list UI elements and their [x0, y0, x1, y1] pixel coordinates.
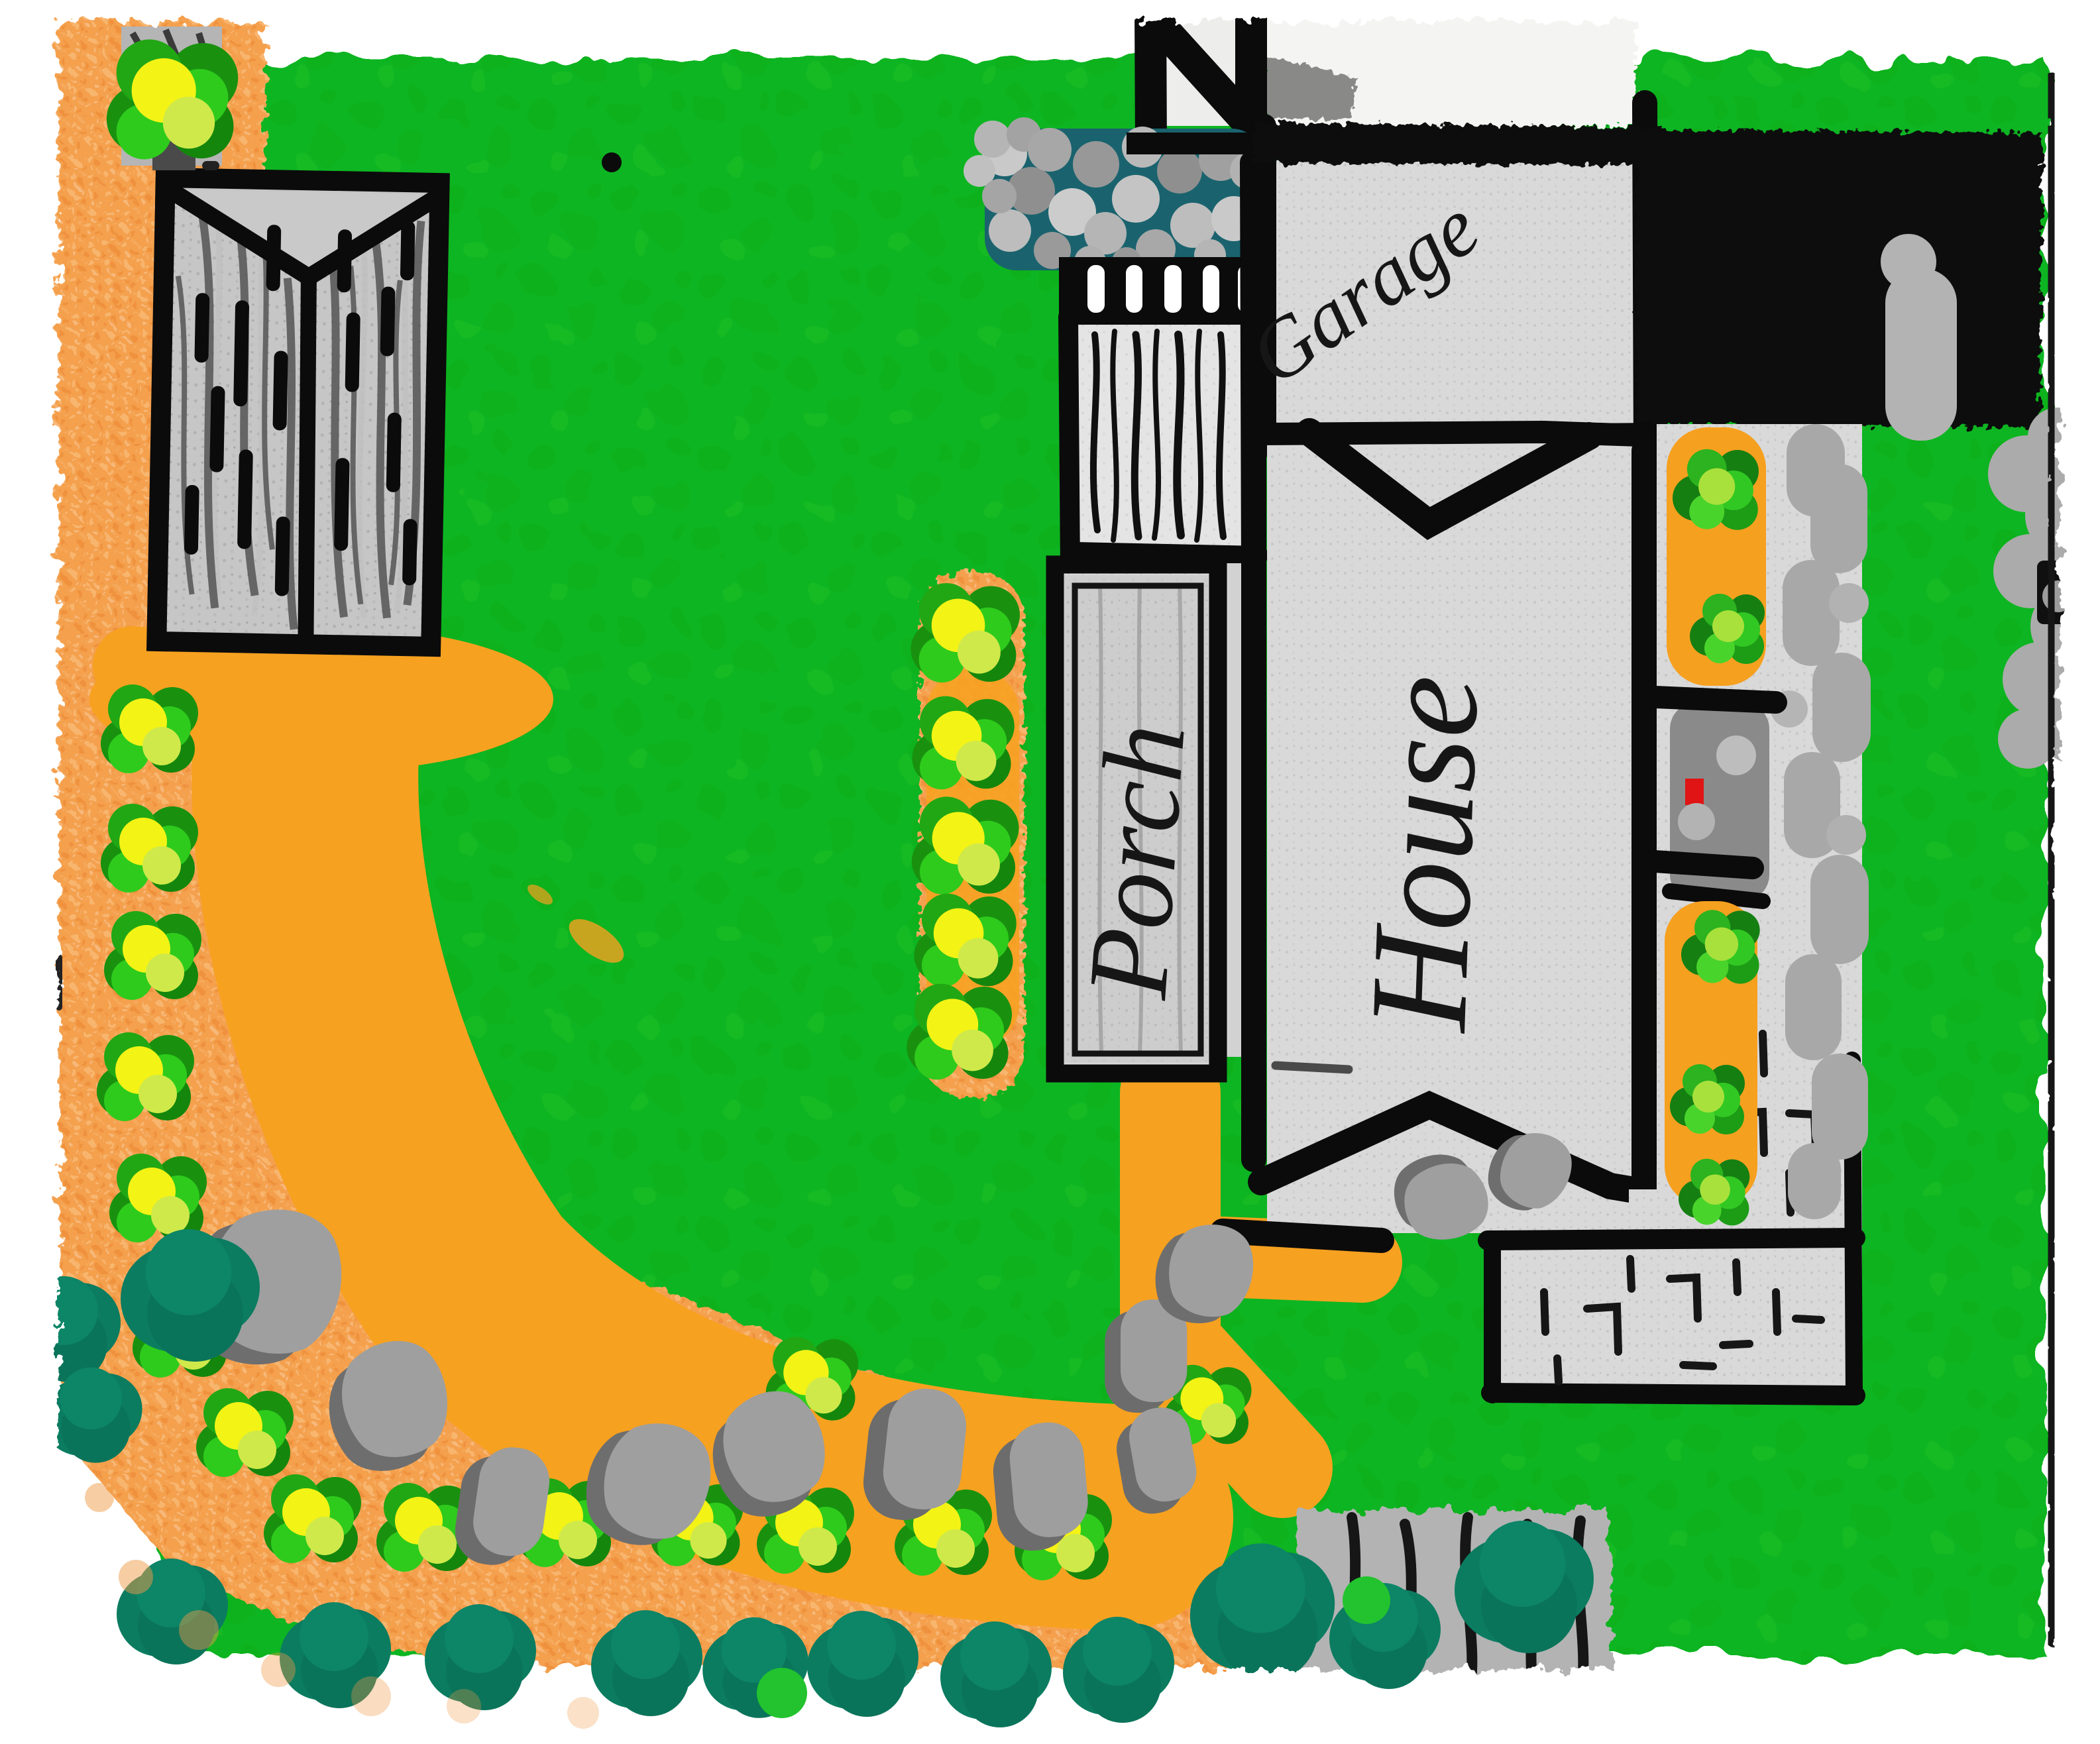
- svg-text:House: House: [1341, 673, 1508, 1035]
- svg-text:Porch: Porch: [1064, 720, 1209, 1003]
